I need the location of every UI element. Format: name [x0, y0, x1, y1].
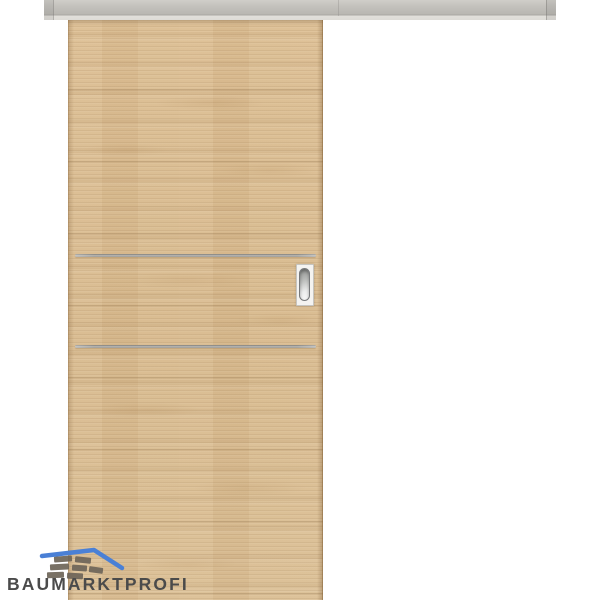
recessed-handle-grip [299, 268, 310, 301]
rail-end-cap-right [546, 0, 556, 20]
metal-inlay-stripe-bottom [75, 345, 316, 348]
brand-name: BAUMARKTPROFI [7, 574, 189, 595]
door-panel [68, 18, 323, 600]
rail-end-cap-left [44, 0, 54, 20]
brand-logo: BAUMARKTPROFI [0, 543, 200, 600]
metal-inlay-stripe-top [75, 254, 316, 257]
rail-joint-seam [338, 0, 339, 16]
sliding-door-rail [44, 0, 556, 20]
product-photo: BAUMARKTPROFI [0, 0, 600, 600]
recessed-handle-plate [296, 264, 314, 306]
